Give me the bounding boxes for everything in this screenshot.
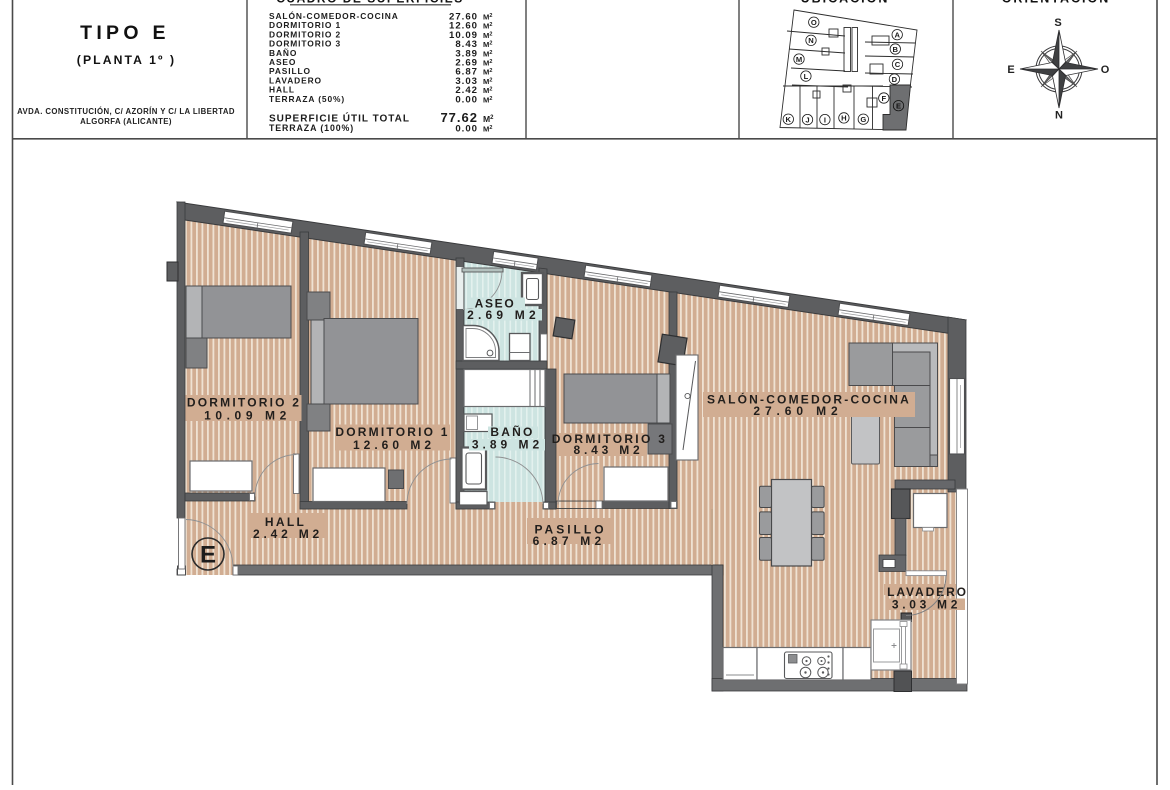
svg-text:E: E (896, 102, 901, 111)
svg-text:3.89 M2: 3.89 M2 (472, 438, 543, 452)
svg-text:F: F (881, 94, 886, 103)
svg-text:ALGORFA (ALICANTE): ALGORFA (ALICANTE) (80, 117, 172, 126)
svg-text:2.69 M2: 2.69 M2 (467, 308, 540, 322)
svg-text:M2: M2 (483, 22, 492, 31)
svg-text:M2: M2 (483, 114, 494, 124)
svg-text:AVDA. CONSTITUCIÓN, C/ AZORÍN: AVDA. CONSTITUCIÓN, C/ AZORÍN Y C/ LA LI… (17, 107, 235, 116)
svg-text:ORIENTACIÓN: ORIENTACIÓN (1002, 0, 1111, 6)
svg-text:TERRAZA (50%): TERRAZA (50%) (269, 94, 345, 104)
svg-text:TERRAZA (100%): TERRAZA (100%) (269, 123, 354, 133)
svg-text:I: I (824, 115, 826, 124)
svg-text:S: S (1054, 17, 1061, 29)
svg-text:N: N (808, 36, 813, 45)
svg-text:27.60 M2: 27.60 M2 (753, 404, 842, 418)
svg-text:O: O (1101, 64, 1110, 76)
svg-text:C: C (895, 60, 901, 69)
svg-text:M2: M2 (483, 86, 492, 95)
svg-text:M: M (796, 55, 802, 64)
svg-text:N: N (1055, 110, 1063, 122)
svg-text:D: D (892, 75, 898, 84)
svg-text:K: K (786, 115, 792, 124)
svg-text:M2: M2 (483, 125, 492, 134)
svg-text:M2: M2 (483, 31, 492, 40)
svg-text:J: J (805, 115, 809, 124)
svg-text:0.00: 0.00 (455, 94, 478, 105)
svg-text:12.60 M2: 12.60 M2 (353, 438, 435, 452)
svg-text:UBICACIÓN: UBICACIÓN (801, 0, 890, 6)
svg-text:M2: M2 (483, 40, 492, 49)
svg-text:DORMITORIO 1: DORMITORIO 1 (335, 425, 449, 439)
svg-text:E: E (1007, 64, 1014, 76)
svg-text:H: H (841, 114, 846, 123)
svg-text:M2: M2 (483, 13, 492, 22)
svg-text:O: O (811, 18, 817, 27)
svg-text:M2: M2 (483, 49, 492, 58)
svg-text:TIPO E: TIPO E (80, 22, 170, 44)
svg-text:10.09 M2: 10.09 M2 (204, 409, 291, 423)
svg-text:M2: M2 (483, 68, 492, 77)
svg-text:L: L (804, 72, 809, 81)
svg-text:B: B (893, 45, 899, 54)
svg-text:E: E (200, 542, 216, 569)
svg-text:A: A (894, 31, 900, 40)
svg-text:(PLANTA 1º ): (PLANTA 1º ) (77, 53, 176, 67)
svg-text:G: G (860, 115, 866, 124)
svg-text:6.87 M2: 6.87 M2 (533, 534, 606, 548)
svg-text:DORMITORIO 2: DORMITORIO 2 (187, 396, 301, 410)
svg-text:M2: M2 (483, 95, 492, 104)
svg-text:M2: M2 (483, 59, 492, 68)
svg-text:M2: M2 (483, 77, 492, 86)
svg-text:8.43 M2: 8.43 M2 (574, 443, 644, 457)
svg-text:0.00: 0.00 (455, 124, 478, 135)
svg-text:2.42 M2: 2.42 M2 (253, 527, 323, 541)
